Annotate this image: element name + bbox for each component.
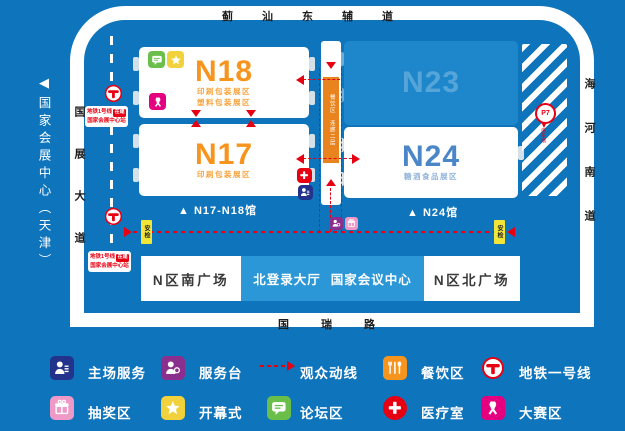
route-arrow-left [296, 75, 304, 85]
visitor-route-icon [260, 365, 288, 367]
metro-station-label: 地铁1号线在建 国家会展中心站 [88, 251, 131, 272]
route-arrow-down [191, 110, 201, 117]
hall-door [133, 57, 139, 71]
metro-station-name: 国家会展中心站 [90, 262, 129, 270]
south-plaza: N区南广场 [141, 256, 241, 301]
route-arrow-down [246, 110, 256, 117]
hall-n24: N24 糖酒食品展区 [344, 127, 518, 198]
legend-label: 地铁一号线 [519, 362, 592, 382]
legend-label: 开幕式 [199, 402, 243, 422]
route-dash [330, 188, 331, 204]
hall-n17-zone: 印刷包装展区 [197, 170, 251, 181]
route-arrow-left [296, 154, 304, 164]
security-check-tag: 安检 [494, 220, 505, 244]
hall-n17-name: N17 [195, 140, 253, 170]
hall-n18-name: N18 [195, 57, 253, 87]
host-service-icon [298, 185, 313, 200]
route-arrow-down [326, 62, 336, 69]
hall-n23: N23 [344, 41, 518, 125]
metro-station-label: 地铁1号线在建 国家会展中心站 [85, 106, 128, 127]
forum-icon [267, 396, 291, 420]
corridor-label: 餐饮区 [328, 94, 334, 114]
hall-door [309, 134, 315, 148]
north-login-hall: 北登录大厅 国家会议中心 [241, 256, 424, 301]
competition-icon [149, 93, 166, 110]
route-dash [303, 158, 352, 159]
opening-ceremony-icon [161, 396, 185, 420]
exhibition-map: 蓟汕东辅道 国展大道 海河南道 国瑞路 ◀ 国家会展中心（天津） 地铁1号线在建… [0, 0, 625, 431]
hall-door [309, 91, 315, 105]
road-bottom-label: 国瑞路 [278, 316, 407, 332]
dining-icon [383, 356, 407, 380]
service-desk-icon [330, 217, 343, 230]
route-dash [319, 68, 320, 232]
venue-label: ◀ 国家会展中心（天津） [33, 76, 55, 271]
legend-label: 论坛区 [300, 402, 344, 422]
route-arrow-up [326, 179, 336, 186]
lottery-icon [50, 396, 74, 420]
legend-label: 抽奖区 [88, 402, 132, 422]
opening-ceremony-icon [167, 51, 184, 68]
route-arrow-up [246, 120, 256, 127]
corridor-label: 连廊二层 [328, 120, 334, 146]
road-right-label: 海河南道 [581, 78, 597, 254]
hall-n24-zone: 糖酒食品展区 [404, 172, 458, 183]
medical-icon [297, 168, 312, 183]
hall-door [133, 134, 139, 148]
hall-n23-name: N23 [402, 66, 460, 100]
metro-station-icon [102, 82, 125, 105]
gate-label-n24: ▲ N24馆 [407, 204, 458, 220]
competition-icon [481, 396, 505, 420]
forum-icon [148, 51, 165, 68]
legend-label: 观众动线 [300, 362, 358, 382]
gate-label-n17n18: ▲ N17-N18馆 [178, 202, 257, 218]
medical-icon [383, 396, 407, 420]
road-left-label: 国展大道 [71, 106, 87, 274]
metro-line1-icon [481, 356, 505, 380]
metro-status-badge: 在建 [116, 254, 129, 262]
route-arrow-left [507, 227, 515, 237]
hall-door [309, 57, 315, 71]
host-service-icon [50, 356, 74, 380]
road-top-label: 蓟汕东辅道 [222, 8, 422, 24]
metro-line-name: 地铁1号线 [90, 254, 115, 260]
security-check-tag: 安检 [141, 220, 152, 244]
route-arrow-right [124, 227, 132, 237]
lottery-icon [345, 217, 358, 230]
visitor-route-icon [287, 361, 295, 371]
corridor-dining-area: 餐饮区 连廊二层 [323, 77, 339, 163]
login-hall-label: 北登录大厅 [253, 269, 321, 288]
route-dash [341, 68, 342, 232]
metro-station-name: 国家会展中心站 [87, 117, 126, 125]
visitor-route-line [133, 231, 512, 233]
parking-pin: P7 [535, 103, 556, 124]
route-arrow-up [191, 120, 201, 127]
metro-station-icon [102, 205, 125, 228]
metro-status-badge: 在建 [113, 109, 126, 117]
hall-door [133, 91, 139, 105]
west-arrow-icon: ◀ [39, 76, 49, 89]
hall-n18-zone: 印刷包装展区 [197, 87, 251, 98]
legend-label: 餐饮区 [421, 362, 465, 382]
legend-label: 服务台 [199, 362, 243, 382]
hall-n18-zone: 塑料包装展区 [197, 98, 251, 109]
metro-line-name: 地铁1号线 [87, 109, 112, 115]
legend-label: 大赛区 [519, 402, 563, 422]
hall-n17: N17 印刷包装展区 [139, 124, 309, 196]
parking-pin-sub: 停车场 [540, 128, 547, 143]
legend-label: 主场服务 [88, 362, 146, 382]
route-dash [303, 79, 340, 80]
venue-name: 国家会展中心（天津） [35, 96, 54, 271]
route-arrow-right [352, 154, 360, 164]
hall-door [133, 168, 139, 182]
convention-center-label: 国家会议中心 [331, 269, 412, 288]
service-desk-icon [161, 356, 185, 380]
north-plaza: N区北广场 [424, 256, 520, 301]
legend-label: 医疗室 [421, 402, 465, 422]
hall-n24-name: N24 [402, 142, 460, 172]
